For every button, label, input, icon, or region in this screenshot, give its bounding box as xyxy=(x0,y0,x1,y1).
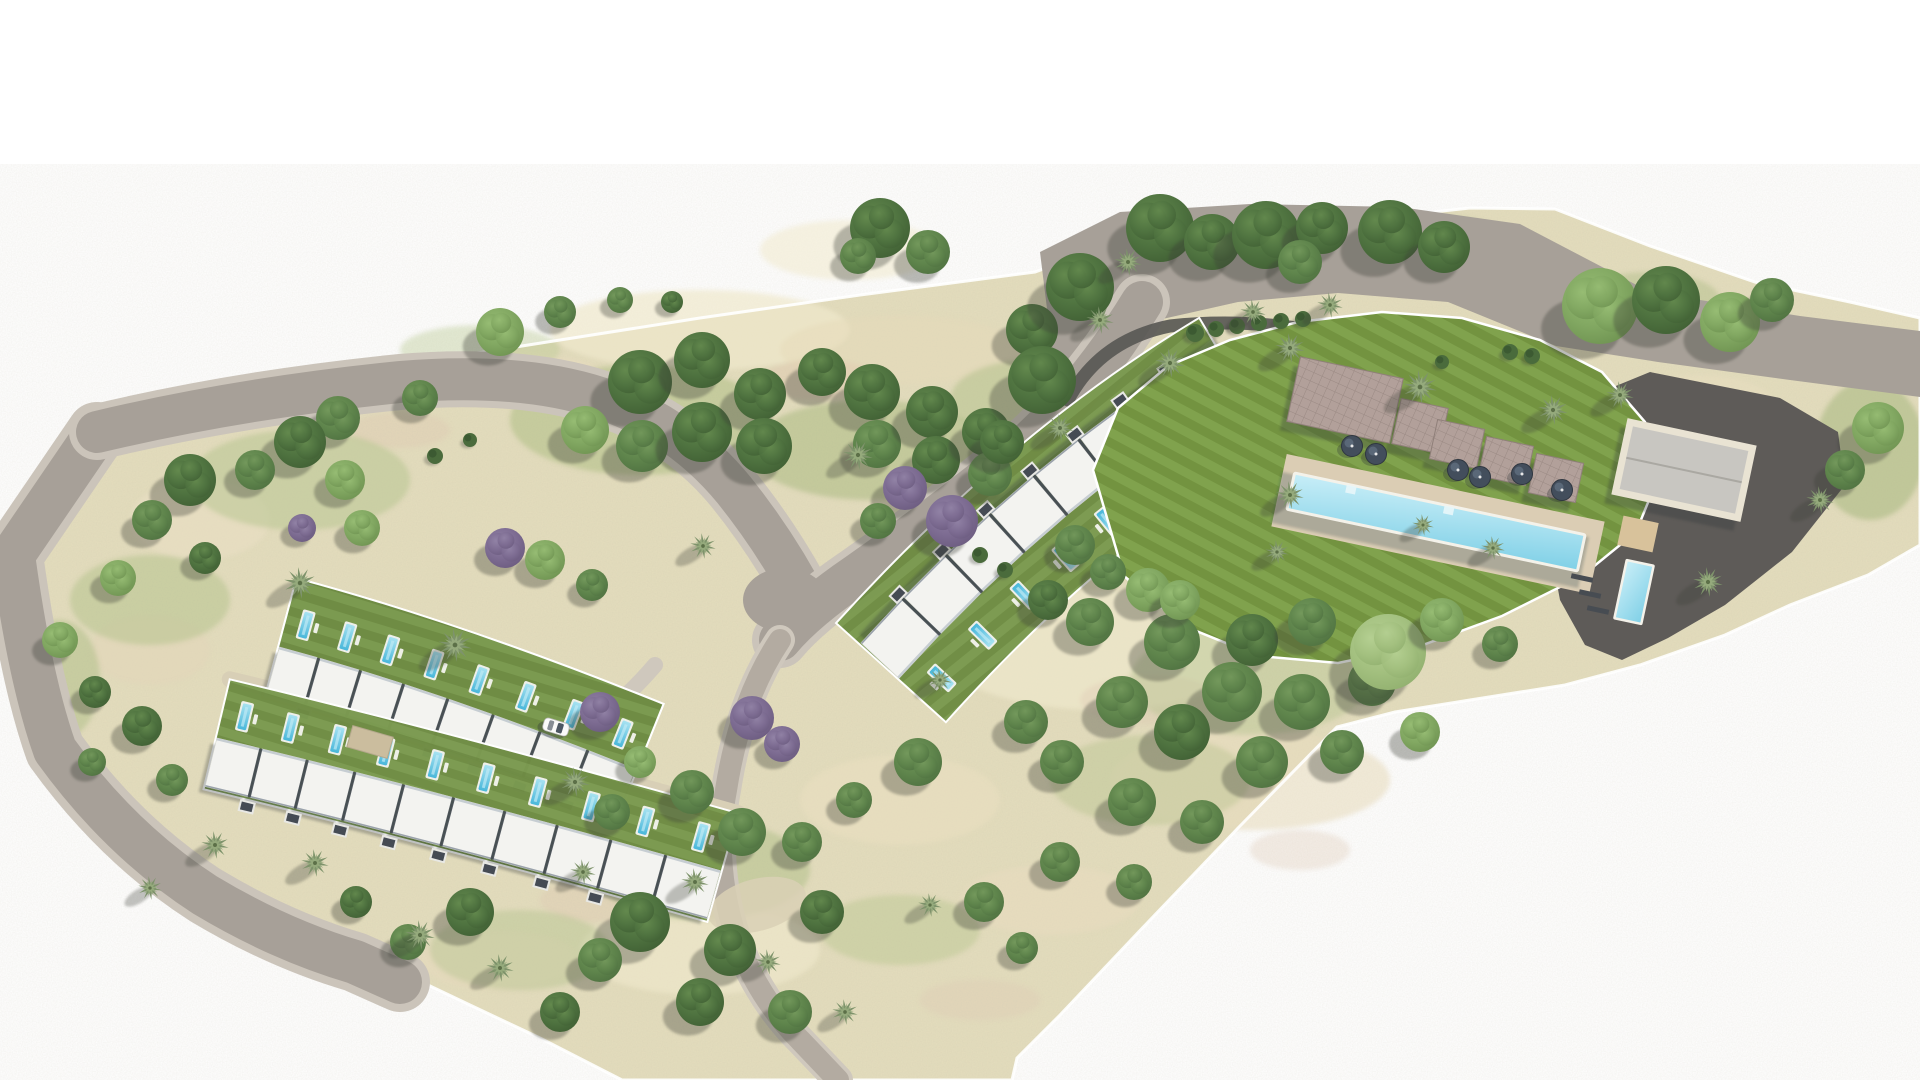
bush-top xyxy=(999,564,1007,572)
palm-crown xyxy=(693,880,697,884)
sand-patch xyxy=(1250,830,1350,870)
tree-lobe xyxy=(1029,353,1058,382)
tree-lobe xyxy=(248,454,265,471)
bush-top xyxy=(1210,323,1218,331)
tree-lobe xyxy=(1493,630,1508,645)
palm-crown xyxy=(1551,408,1555,412)
tree-lobe xyxy=(166,767,179,780)
tree-lobe xyxy=(692,338,716,362)
tree-lobe xyxy=(691,983,711,1003)
tree-lobe xyxy=(1292,680,1316,704)
tree-lobe xyxy=(1252,741,1274,763)
tree-lobe xyxy=(920,234,938,252)
tree-lobe xyxy=(977,886,994,903)
tree-lobe xyxy=(629,898,654,923)
tree-lobe xyxy=(750,373,772,395)
umbrella-pole xyxy=(1521,473,1524,476)
tree-lobe xyxy=(1041,584,1058,601)
tree-lobe xyxy=(89,679,102,692)
palm-crown xyxy=(1618,393,1622,397)
tree-lobe xyxy=(1334,734,1352,752)
tree-lobe xyxy=(1242,619,1264,641)
tree-lobe xyxy=(1147,201,1176,230)
tree-lobe xyxy=(593,696,610,713)
palm-crown xyxy=(418,933,422,937)
tree-lobe xyxy=(720,929,742,951)
tree-lobe xyxy=(1067,260,1096,289)
tree-lobe xyxy=(1653,273,1682,302)
masterplan-svg xyxy=(0,0,1920,1080)
tree-lobe xyxy=(868,425,888,445)
tree-lobe xyxy=(869,204,894,229)
umbrella-pole xyxy=(1375,453,1378,456)
tree-lobe xyxy=(615,290,626,301)
palm-crown xyxy=(1421,523,1424,526)
palm-crown xyxy=(766,960,770,964)
tree-lobe xyxy=(297,517,309,529)
bush-top xyxy=(974,549,982,557)
tree-lobe xyxy=(922,391,944,413)
tree-lobe xyxy=(1016,935,1029,948)
tree-lobe xyxy=(338,464,355,481)
tree-lobe xyxy=(1374,622,1406,654)
masterplan-render xyxy=(0,0,1920,1080)
umbrella-pole xyxy=(1479,476,1482,479)
tree-lobe xyxy=(1253,208,1282,237)
bush-top xyxy=(464,434,471,441)
tree-lobe xyxy=(795,826,812,843)
tree-lobe xyxy=(554,299,567,312)
tree-lobe xyxy=(330,400,348,418)
tree-lobe xyxy=(199,545,212,558)
palm-crown xyxy=(843,1010,847,1014)
tree-lobe xyxy=(145,504,162,521)
tree-lobe xyxy=(1173,584,1190,601)
tree-lobe xyxy=(1434,602,1452,620)
tree-lobe xyxy=(53,626,68,641)
palm-crown xyxy=(856,453,860,457)
palm-crown xyxy=(1288,346,1292,350)
tree-lobe xyxy=(733,813,753,833)
tree-lobe xyxy=(135,710,152,727)
tree-lobe xyxy=(994,424,1012,442)
tree-lobe xyxy=(111,564,126,579)
palm-crown xyxy=(1275,550,1278,553)
palm-crown xyxy=(573,780,577,784)
tree-lobe xyxy=(1413,716,1430,733)
tree-lobe xyxy=(1312,207,1334,229)
palm-crown xyxy=(1818,498,1822,502)
tree-lobe xyxy=(1101,558,1116,573)
tree-lobe xyxy=(1018,704,1036,722)
tree-lobe xyxy=(1194,804,1212,822)
tree-lobe xyxy=(782,994,800,1012)
tree-lobe xyxy=(1172,710,1196,734)
palm-crown xyxy=(313,861,317,865)
palm-crown xyxy=(581,870,585,874)
tree-lobe xyxy=(862,370,886,394)
palm-crown xyxy=(1288,493,1292,497)
tree-lobe xyxy=(461,893,481,913)
tree-lobe xyxy=(605,798,620,813)
tree-lobe xyxy=(1764,282,1782,300)
tree-lobe xyxy=(871,507,886,522)
tree-lobe xyxy=(355,514,370,529)
tree-lobe xyxy=(691,408,716,433)
tree xyxy=(1389,712,1440,760)
tree-lobe xyxy=(1378,206,1405,233)
tree-lobe xyxy=(927,441,947,461)
tree-lobe xyxy=(87,751,99,763)
tree-lobe xyxy=(684,774,702,792)
tree-lobe xyxy=(942,500,964,522)
tree-lobe xyxy=(290,421,312,443)
tree-lobe xyxy=(576,411,596,431)
tree-lobe xyxy=(413,384,428,399)
umbrella-pole xyxy=(1351,445,1354,448)
palm-crown xyxy=(298,581,302,585)
palm-crown xyxy=(148,886,151,889)
umbrella-pole xyxy=(1561,489,1564,492)
palm-crown xyxy=(938,678,941,681)
bush-top xyxy=(1504,346,1512,354)
bush-top xyxy=(1436,356,1443,363)
bush-top xyxy=(1275,315,1283,323)
umbrella-pole xyxy=(1457,469,1460,472)
palm-crown xyxy=(498,966,502,970)
tree-lobe xyxy=(1140,572,1158,590)
bush-top xyxy=(1188,326,1197,335)
tree-lobe xyxy=(847,786,862,801)
tree-lobe xyxy=(1838,454,1855,471)
tree-lobe xyxy=(1221,668,1246,693)
tree-lobe xyxy=(851,242,866,257)
road-junction xyxy=(743,568,827,632)
tree-lobe xyxy=(1127,868,1142,883)
tree-lobe xyxy=(1081,603,1101,623)
tree-lobe xyxy=(586,572,599,585)
palm-crown xyxy=(1058,426,1062,430)
palm-crown xyxy=(928,903,931,906)
bush-top xyxy=(1526,350,1534,358)
tree-lobe xyxy=(632,425,654,447)
tree-lobe xyxy=(1123,783,1143,803)
palm-crown xyxy=(1251,310,1255,314)
tree-lobe xyxy=(538,544,555,561)
tree-lobe xyxy=(553,996,570,1013)
palm-crown xyxy=(1491,546,1494,549)
scrub-patch xyxy=(820,895,980,965)
tree-lobe xyxy=(1292,244,1310,262)
tree-lobe xyxy=(744,700,762,718)
palm-crown xyxy=(453,643,458,648)
tree-lobe xyxy=(1303,603,1323,623)
tree-lobe xyxy=(1868,407,1890,429)
palm-crown xyxy=(1098,318,1102,322)
tree-lobe xyxy=(775,730,790,745)
tree-lobe xyxy=(754,424,778,448)
tree-lobe xyxy=(1434,226,1456,248)
tree-lobe xyxy=(498,532,515,549)
tree-lobe xyxy=(1112,681,1134,703)
tree-lobe xyxy=(180,459,202,481)
tree-lobe xyxy=(1068,529,1085,546)
palm-crown xyxy=(701,544,705,548)
palm-crown xyxy=(1328,303,1332,307)
tree-lobe xyxy=(1053,846,1070,863)
palm-crown xyxy=(1126,260,1130,264)
palm-crown xyxy=(1418,385,1423,390)
tree-lobe xyxy=(491,313,511,333)
tree-lobe xyxy=(897,470,915,488)
tree-lobe xyxy=(592,942,610,960)
tree-lobe xyxy=(628,356,655,383)
tree-lobe xyxy=(813,353,833,373)
tree-lobe xyxy=(909,743,929,763)
bush-top xyxy=(429,450,437,458)
tree-lobe xyxy=(1054,744,1072,762)
tree-lobe xyxy=(634,749,647,762)
tree-lobe xyxy=(1586,276,1618,308)
tree-lobe xyxy=(668,293,677,302)
palm-crown xyxy=(1168,361,1172,365)
tree-lobe xyxy=(814,894,832,912)
palm-crown xyxy=(213,843,217,847)
sand-patch xyxy=(920,980,1040,1020)
tree-lobe xyxy=(350,889,363,902)
palm-crown xyxy=(1706,580,1710,584)
